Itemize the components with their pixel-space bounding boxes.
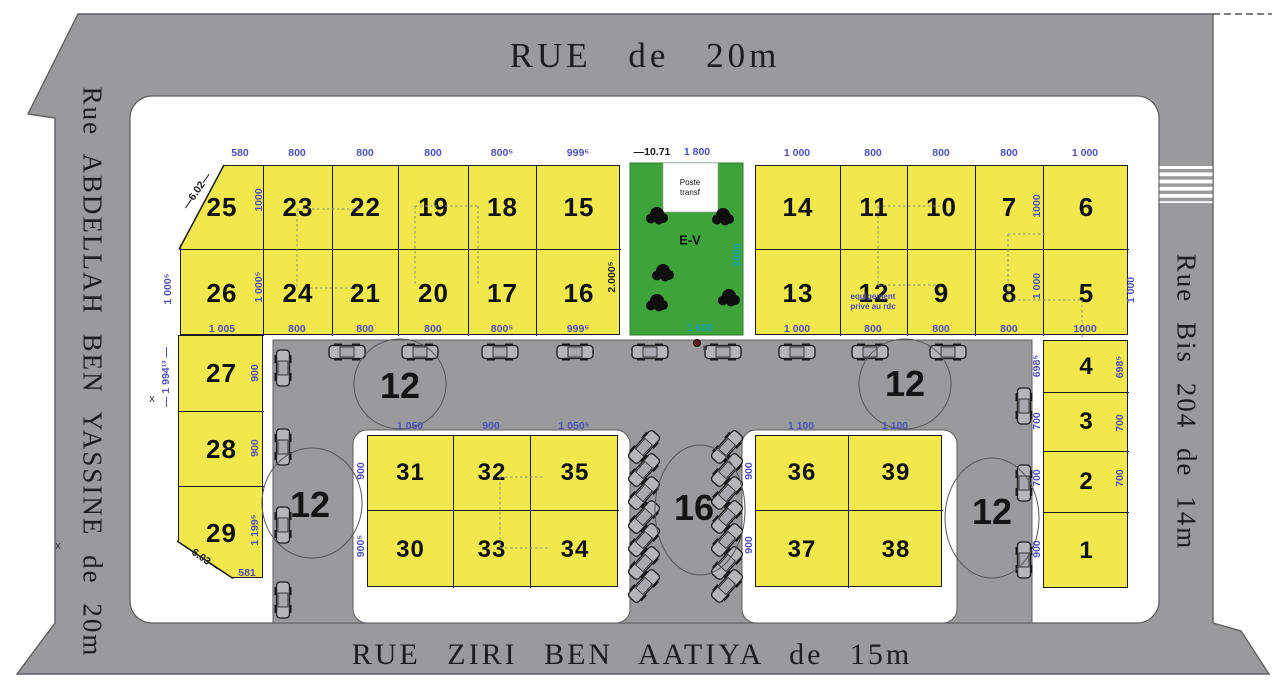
lot-block-nw: 252322191815262421201716 (180, 165, 620, 335)
car-icon (275, 507, 292, 543)
street-name-bottom: RUE ZIRI BEN AATIYA de 15m (352, 638, 912, 672)
dim-label: 800 (424, 147, 442, 159)
dim-label: 999⁵ (567, 323, 589, 335)
lot-11: 11 (841, 166, 908, 250)
car-icon (1016, 388, 1033, 424)
dim-label: 999⁵ (567, 147, 589, 159)
lot-19: 19 (399, 166, 469, 250)
lot-number: 10 (926, 192, 957, 223)
lot-number: 5 (1079, 278, 1094, 309)
lot-number: 21 (350, 278, 381, 309)
lot-number: 8 (1002, 278, 1017, 309)
lot-number: 34 (561, 536, 590, 564)
lot-number: 22 (350, 192, 381, 223)
lot-25: 25 (181, 166, 264, 250)
dim-label: 700 (1031, 412, 1043, 430)
lot-number: 27 (206, 358, 237, 389)
dim-label: 1 050⁵ (558, 420, 589, 432)
lot-39: 39 (849, 436, 943, 511)
lot-number: 23 (283, 192, 314, 223)
dim-label: 1000 (253, 188, 265, 211)
street-name-right: Rue Bis 204 de 14m (1171, 254, 1202, 551)
dim-label: 700 (1114, 469, 1126, 487)
dim-label: —10.71 (634, 146, 671, 158)
dim-label: 1 000 (784, 147, 810, 159)
subdivision-plan: 2523221918152624212017161411107613129852… (0, 0, 1280, 697)
car-icon (329, 344, 365, 361)
lot-12-note: equipement privé au rdc (850, 292, 895, 311)
lot-number: 14 (783, 192, 814, 223)
dim-label: 800 (288, 323, 306, 335)
lot-34: 34 (531, 511, 619, 588)
dim-label: 698⁵ (1031, 355, 1043, 377)
dim-label: 581 (238, 567, 256, 579)
dim-label: 900 (249, 364, 261, 382)
car-icon (402, 344, 438, 361)
lot-number: 2 (1079, 468, 1093, 496)
lot-block-i2: 36393738 (755, 435, 942, 587)
lot-number: 6 (1079, 192, 1094, 223)
dim-label: 800⁵ (491, 323, 513, 335)
lot-number: 25 (207, 192, 238, 223)
lot-number: 7 (1002, 192, 1017, 223)
car-icon (852, 344, 888, 361)
dim-label: 1 000 (1125, 277, 1137, 303)
dim-label: 1 100 (882, 420, 908, 432)
lot-number: 28 (206, 434, 237, 465)
lot-37: 37 (756, 511, 849, 588)
lot-32: 32 (454, 436, 531, 511)
dim-label: 1 000 (1031, 273, 1043, 299)
lot-number: 31 (396, 459, 425, 487)
dim-label: 900⁵ (355, 535, 367, 557)
lot-22: 22 (333, 166, 399, 250)
green-space-label: E-V (679, 233, 701, 248)
lot-33: 33 (454, 511, 531, 588)
lot-number: 30 (396, 536, 425, 564)
lot-number: 9 (934, 278, 949, 309)
lot-number: 11 (859, 192, 889, 223)
survey-x-mark: x (55, 540, 61, 552)
car-icon (275, 429, 292, 465)
dim-label: 800⁵ (491, 147, 513, 159)
car-icon (275, 582, 292, 618)
dim-label: 1 000 (1072, 147, 1098, 159)
lot-number: 32 (478, 459, 507, 487)
dim-label: 698⁵ (1114, 356, 1126, 378)
car-icon (482, 344, 518, 361)
dim-label: 1 199⁵ (249, 514, 261, 545)
lot-35: 35 (531, 436, 619, 511)
lot-6: 6 (1044, 166, 1129, 250)
dim-label: 900 (743, 536, 755, 554)
lot-number: 4 (1079, 353, 1093, 381)
crosswalk (1160, 166, 1213, 203)
dim-label: 1000 (1073, 323, 1096, 335)
dim-label: 800 (864, 147, 882, 159)
car-icon (930, 344, 966, 361)
dim-label: 1 000⁵ (253, 271, 265, 302)
dim-label: 800 (1000, 323, 1018, 335)
dim-label: 900 (249, 439, 261, 457)
car-icon (1016, 542, 1033, 578)
car-icon (1016, 465, 1033, 501)
car-icon (557, 344, 593, 361)
dim-label: 800 (932, 147, 950, 159)
dim-label: 1 600 (687, 322, 713, 334)
dim-label: 1 000 (784, 323, 810, 335)
dim-label: — 1 994¹³ — (160, 347, 172, 407)
car-icon (632, 344, 668, 361)
dim-label: 800 (424, 323, 442, 335)
dim-label: 1 800 (684, 146, 710, 158)
lot-30: 30 (368, 511, 454, 588)
lot-number: 33 (478, 536, 507, 564)
survey-x-mark: x (149, 393, 155, 405)
lot-number: 38 (882, 536, 911, 564)
lot-number: 19 (418, 192, 449, 223)
road-width-label: 12 (380, 365, 420, 407)
car-icon (779, 344, 815, 361)
lot-36: 36 (756, 436, 849, 511)
lot-number: 17 (487, 278, 518, 309)
car-icon (705, 344, 741, 361)
dim-label: 900 (1031, 540, 1043, 558)
lot-number: 13 (783, 278, 814, 309)
lot-number: 1 (1079, 537, 1093, 565)
dim-label: 2.000⁵ (606, 261, 618, 292)
lot-number: 37 (788, 536, 817, 564)
road-width-label: 16 (674, 487, 714, 529)
dim-label: 800 (356, 323, 374, 335)
dim-label: 900 (482, 420, 500, 432)
lot-10: 10 (908, 166, 976, 250)
dim-label: 1 005 (209, 323, 235, 335)
lot-number: 18 (487, 192, 518, 223)
dim-label: 800 (356, 147, 374, 159)
street-name-top: RUE de 20m (510, 36, 781, 76)
lot-number: 35 (561, 459, 590, 487)
lot-number: 3 (1079, 408, 1093, 436)
dim-label: 1 050 (397, 420, 423, 432)
dim-label: 800 (288, 147, 306, 159)
lot-number: 26 (207, 278, 238, 309)
dim-label: 1 100 (788, 420, 814, 432)
road-width-label: 12 (290, 484, 330, 526)
lot-number: 16 (564, 278, 595, 309)
survey-marker-dot (694, 340, 701, 347)
lot-block-ne: 141110761312985 (755, 165, 1128, 335)
street-name-left: Rue ABDELLAH BEN YASSINE de 20m (77, 87, 108, 658)
lot-14: 14 (756, 166, 841, 250)
dim-label: 580 (231, 147, 249, 159)
road-width-label: 12 (972, 491, 1012, 533)
dim-label: 700 (1031, 469, 1043, 487)
dim-label: 800 (932, 323, 950, 335)
lot-number: 24 (283, 278, 314, 309)
marker-label: n (703, 343, 707, 352)
dim-label: 700 (1114, 414, 1126, 432)
car-icon (275, 350, 292, 386)
dim-label: 2000 (731, 243, 743, 266)
lot-number: 20 (418, 278, 449, 309)
lot-18: 18 (469, 166, 537, 250)
lot-31: 31 (368, 436, 454, 511)
dim-label: 900 (355, 462, 367, 480)
lot-block-i1: 313235303334 (367, 435, 618, 587)
lot-1: 1 (1044, 513, 1129, 589)
dim-label: 900 (743, 462, 755, 480)
dim-label: 800 (864, 323, 882, 335)
lot-number: 15 (564, 192, 595, 223)
lot-number: 39 (882, 459, 911, 487)
road-width-label: 12 (885, 363, 925, 405)
lot-15: 15 (537, 166, 621, 250)
dim-label: 800 (1000, 147, 1018, 159)
lot-number: 36 (788, 459, 817, 487)
transformer-station-label: Poste transf (680, 178, 700, 198)
dim-label: 1000 (1031, 194, 1043, 217)
dim-label: 1 000⁵ (162, 273, 174, 304)
lot-38: 38 (849, 511, 943, 588)
lot-23: 23 (264, 166, 333, 250)
lot-number: 29 (206, 518, 237, 549)
